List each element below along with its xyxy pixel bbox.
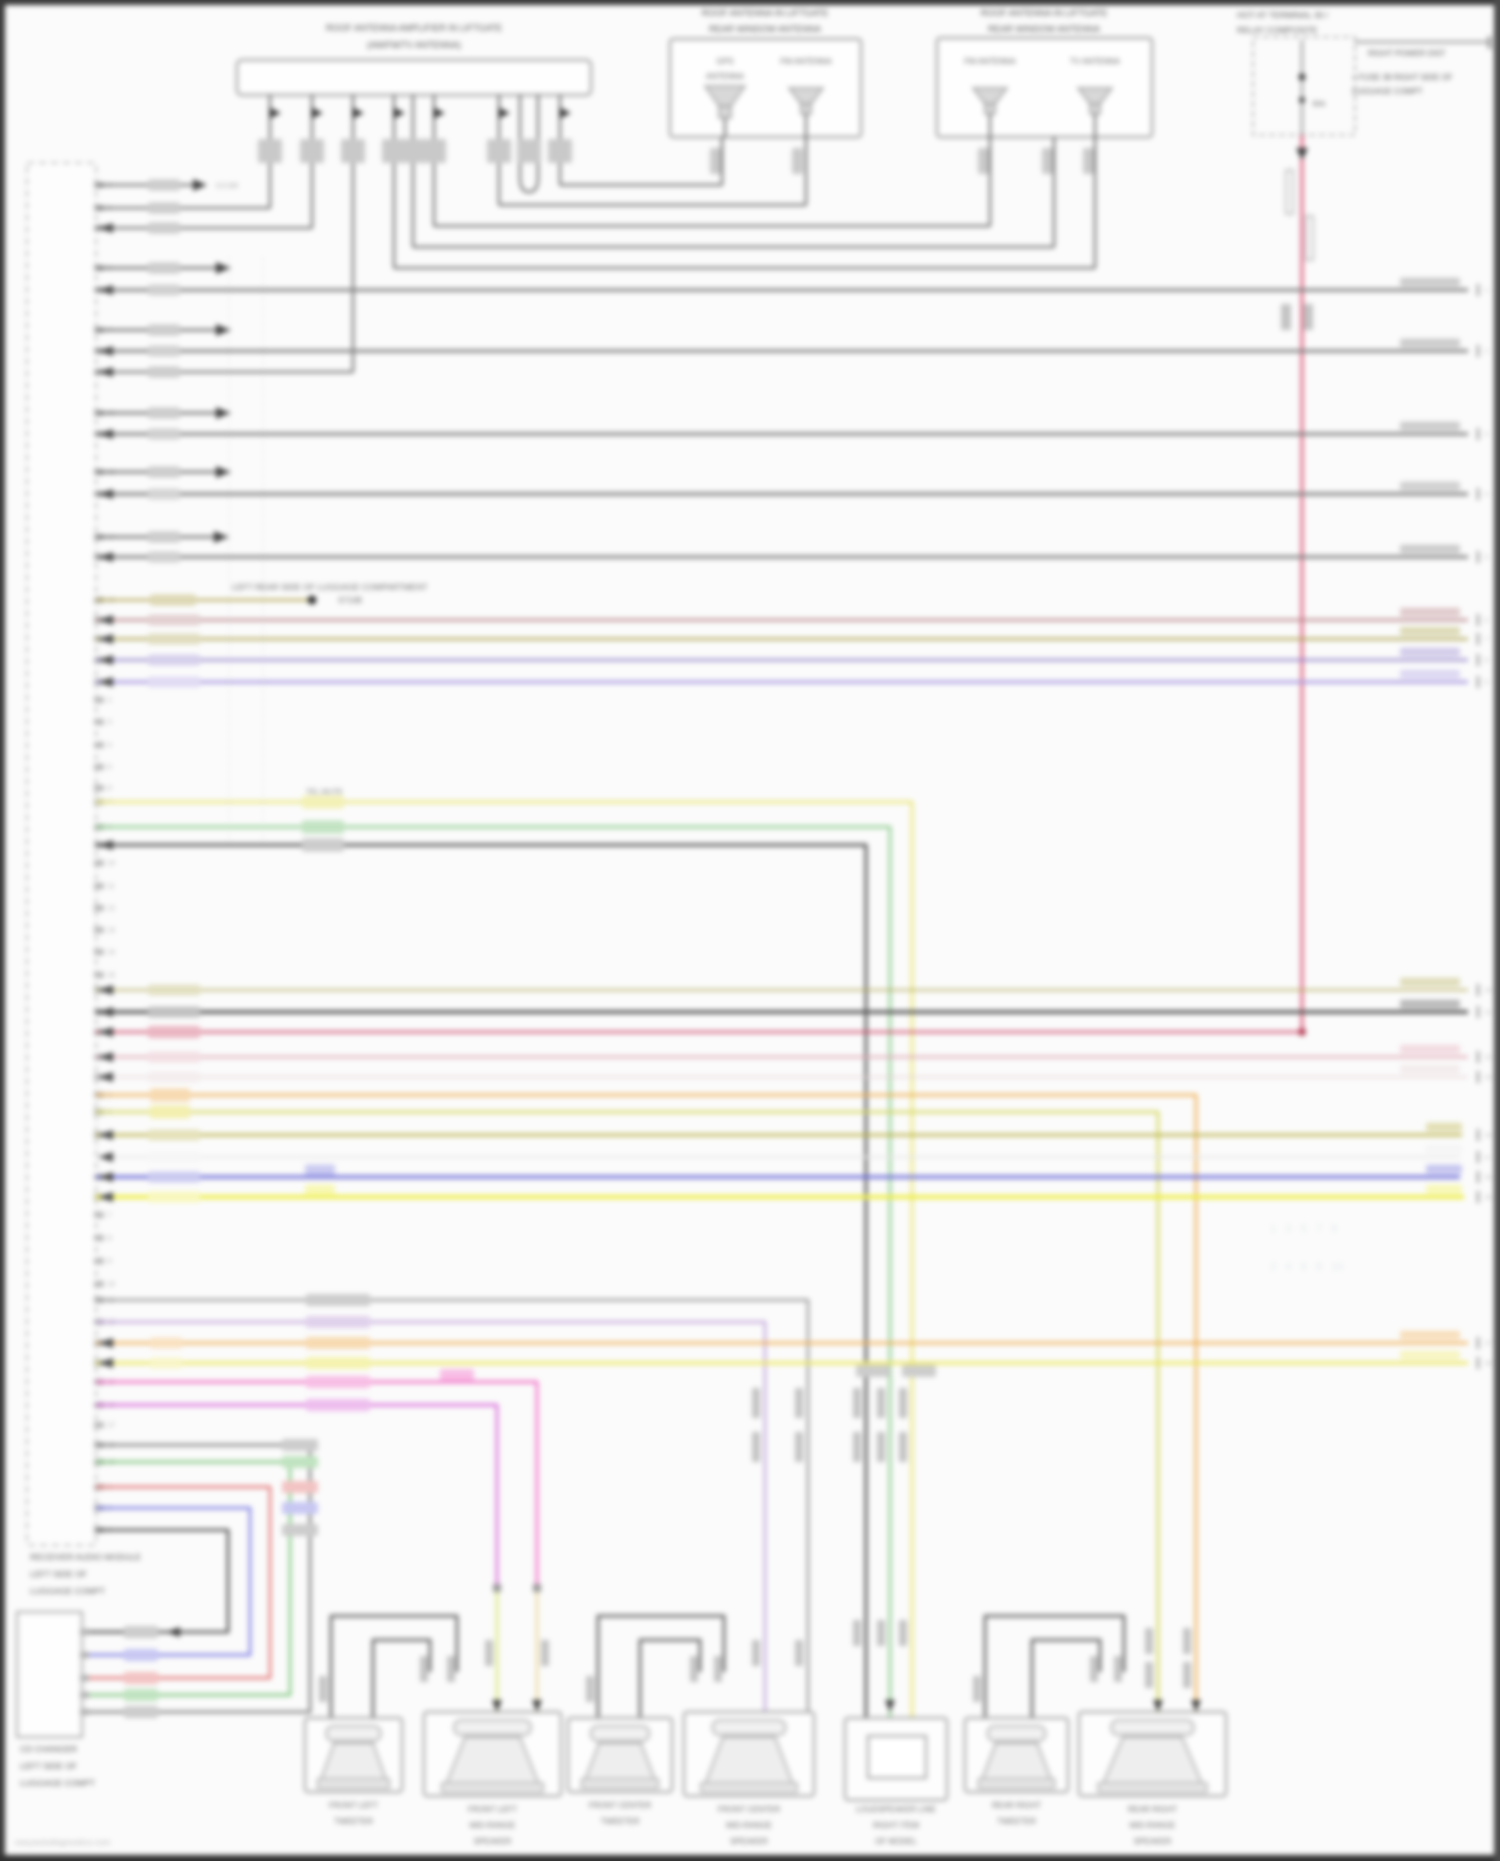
svg-text:(AM/FM/TV ANTENNA): (AM/FM/TV ANTENNA) xyxy=(367,40,461,50)
svg-text:8: 8 xyxy=(1485,658,1488,664)
svg-text:LOUDSPEAKER LINE: LOUDSPEAKER LINE xyxy=(856,1805,936,1814)
svg-text:12: 12 xyxy=(1485,1055,1491,1061)
svg-text:SPEAKER: SPEAKER xyxy=(1134,1837,1172,1846)
svg-text:4: 4 xyxy=(1485,492,1488,498)
svg-text:MID-RANGE: MID-RANGE xyxy=(470,1821,516,1830)
svg-text:6: 6 xyxy=(1485,618,1488,624)
svg-text:1: 1 xyxy=(1485,288,1488,294)
svg-text:12: 12 xyxy=(108,906,115,912)
svg-text:10: 10 xyxy=(108,1282,115,1288)
svg-text:RIGHT ITEM: RIGHT ITEM xyxy=(873,1821,919,1830)
svg-text:LEFT REAR SIDE OF LUGGAGE COMP: LEFT REAR SIDE OF LUGGAGE COMPARTMENT xyxy=(232,582,428,592)
svg-text:REAR WINDOW ANTENNA: REAR WINDOW ANTENNA xyxy=(988,24,1100,34)
svg-text:FRONT CENTER: FRONT CENTER xyxy=(589,1801,652,1810)
svg-text:14: 14 xyxy=(1485,1133,1491,1139)
svg-text:7: 7 xyxy=(1485,637,1488,643)
svg-text:15: 15 xyxy=(108,973,115,979)
svg-text:MID-RANGE: MID-RANGE xyxy=(726,1821,772,1830)
svg-text:FRONT CENTER: FRONT CENTER xyxy=(718,1805,781,1814)
svg-text:FRONT LEFT: FRONT LEFT xyxy=(329,1801,378,1810)
svg-text:5: 5 xyxy=(1485,555,1488,561)
svg-text:ROOF ANTENNA IN LIFTGATE: ROOF ANTENNA IN LIFTGATE xyxy=(981,8,1108,18)
svg-text:2: 2 xyxy=(1485,349,1488,355)
svg-text:REAR RIGHT: REAR RIGHT xyxy=(992,1801,1041,1810)
svg-text:LUGGAGE COMPT: LUGGAGE COMPT xyxy=(20,1778,95,1788)
svg-text:11: 11 xyxy=(108,884,115,890)
svg-text:3: 3 xyxy=(1485,432,1488,438)
svg-text:TWEETER: TWEETER xyxy=(997,1817,1036,1826)
svg-text:FM ANTENNA: FM ANTENNA xyxy=(964,57,1016,66)
svg-text:16: 16 xyxy=(1485,1195,1491,1201)
svg-text:FM ANTENNA: FM ANTENNA xyxy=(780,57,832,66)
svg-text:OF MODEL: OF MODEL xyxy=(875,1837,917,1846)
svg-text:10: 10 xyxy=(1485,988,1491,994)
svg-text:LUGGAGE COMPT: LUGGAGE COMPT xyxy=(30,1586,105,1596)
svg-text:w: w xyxy=(1484,1155,1489,1161)
svg-text:14: 14 xyxy=(108,950,115,956)
svg-text:LUGGAGE COMPT: LUGGAGE COMPT xyxy=(1352,87,1423,96)
svg-text:2 4 6 8 10: 2 4 6 8 10 xyxy=(1270,1261,1343,1273)
svg-text:17: 17 xyxy=(108,1423,115,1429)
svg-text:SPEAKER: SPEAKER xyxy=(730,1837,768,1846)
svg-text:18: 18 xyxy=(1485,1361,1491,1367)
svg-text:1 3 5 7 9: 1 3 5 7 9 xyxy=(1270,1223,1337,1235)
svg-text:30A: 30A xyxy=(1312,99,1325,108)
svg-text:17: 17 xyxy=(1485,1341,1491,1347)
svg-text:13: 13 xyxy=(108,928,115,934)
svg-text:9: 9 xyxy=(1485,680,1488,686)
svg-text:easyautodiagnostics.com: easyautodiagnostics.com xyxy=(15,1837,110,1847)
svg-text:GPS: GPS xyxy=(717,57,734,66)
svg-text:SPEAKER: SPEAKER xyxy=(474,1837,512,1846)
svg-text:ROOF ANTENNA IN LIFTGATE: ROOF ANTENNA IN LIFTGATE xyxy=(702,8,829,18)
svg-text:RELAY COMPOSITE: RELAY COMPOSITE xyxy=(1237,25,1318,35)
svg-text:TV ANTENNA: TV ANTENNA xyxy=(1070,57,1121,66)
svg-text:CD CHANGER: CD CHANGER xyxy=(20,1744,77,1754)
svg-text:TWEETER: TWEETER xyxy=(334,1817,373,1826)
svg-text:REAR RIGHT: REAR RIGHT xyxy=(1128,1805,1177,1814)
svg-text:LEFT SIDE OF: LEFT SIDE OF xyxy=(30,1569,87,1579)
svg-text:10: 10 xyxy=(108,861,115,867)
svg-text:+ FUSE 38 RIGHT SIDE OF: + FUSE 38 RIGHT SIDE OF xyxy=(1352,73,1453,82)
svg-text:ROOF ANTENNA AMPLIFIER IN LIFT: ROOF ANTENNA AMPLIFIER IN LIFTGATE xyxy=(326,23,502,33)
svg-text:11: 11 xyxy=(1485,1010,1491,1016)
svg-text:0.5 GR: 0.5 GR xyxy=(216,183,238,190)
svg-text:15: 15 xyxy=(1485,1175,1491,1181)
svg-text:LEFT SIDE OF: LEFT SIDE OF xyxy=(20,1761,77,1771)
svg-text:FRONT LEFT: FRONT LEFT xyxy=(468,1805,517,1814)
svg-text:ANTENNA: ANTENNA xyxy=(706,72,745,81)
svg-text:S710B: S710B xyxy=(338,596,362,605)
svg-text:MID-RANGE: MID-RANGE xyxy=(1130,1821,1176,1830)
svg-text:RIGHT POWER DIST: RIGHT POWER DIST xyxy=(1368,49,1446,58)
svg-text:TEL MUTE: TEL MUTE xyxy=(306,787,343,796)
svg-text:HOT AT TERMINAL 30 /: HOT AT TERMINAL 30 / xyxy=(1237,10,1329,20)
svg-text:13: 13 xyxy=(1485,1075,1491,1081)
svg-text:REAR WINDOW ANTENNA: REAR WINDOW ANTENNA xyxy=(709,24,821,34)
svg-text:TWEETER: TWEETER xyxy=(600,1817,639,1826)
svg-text:RECEIVER AUDIO MODULE: RECEIVER AUDIO MODULE xyxy=(30,1552,141,1562)
